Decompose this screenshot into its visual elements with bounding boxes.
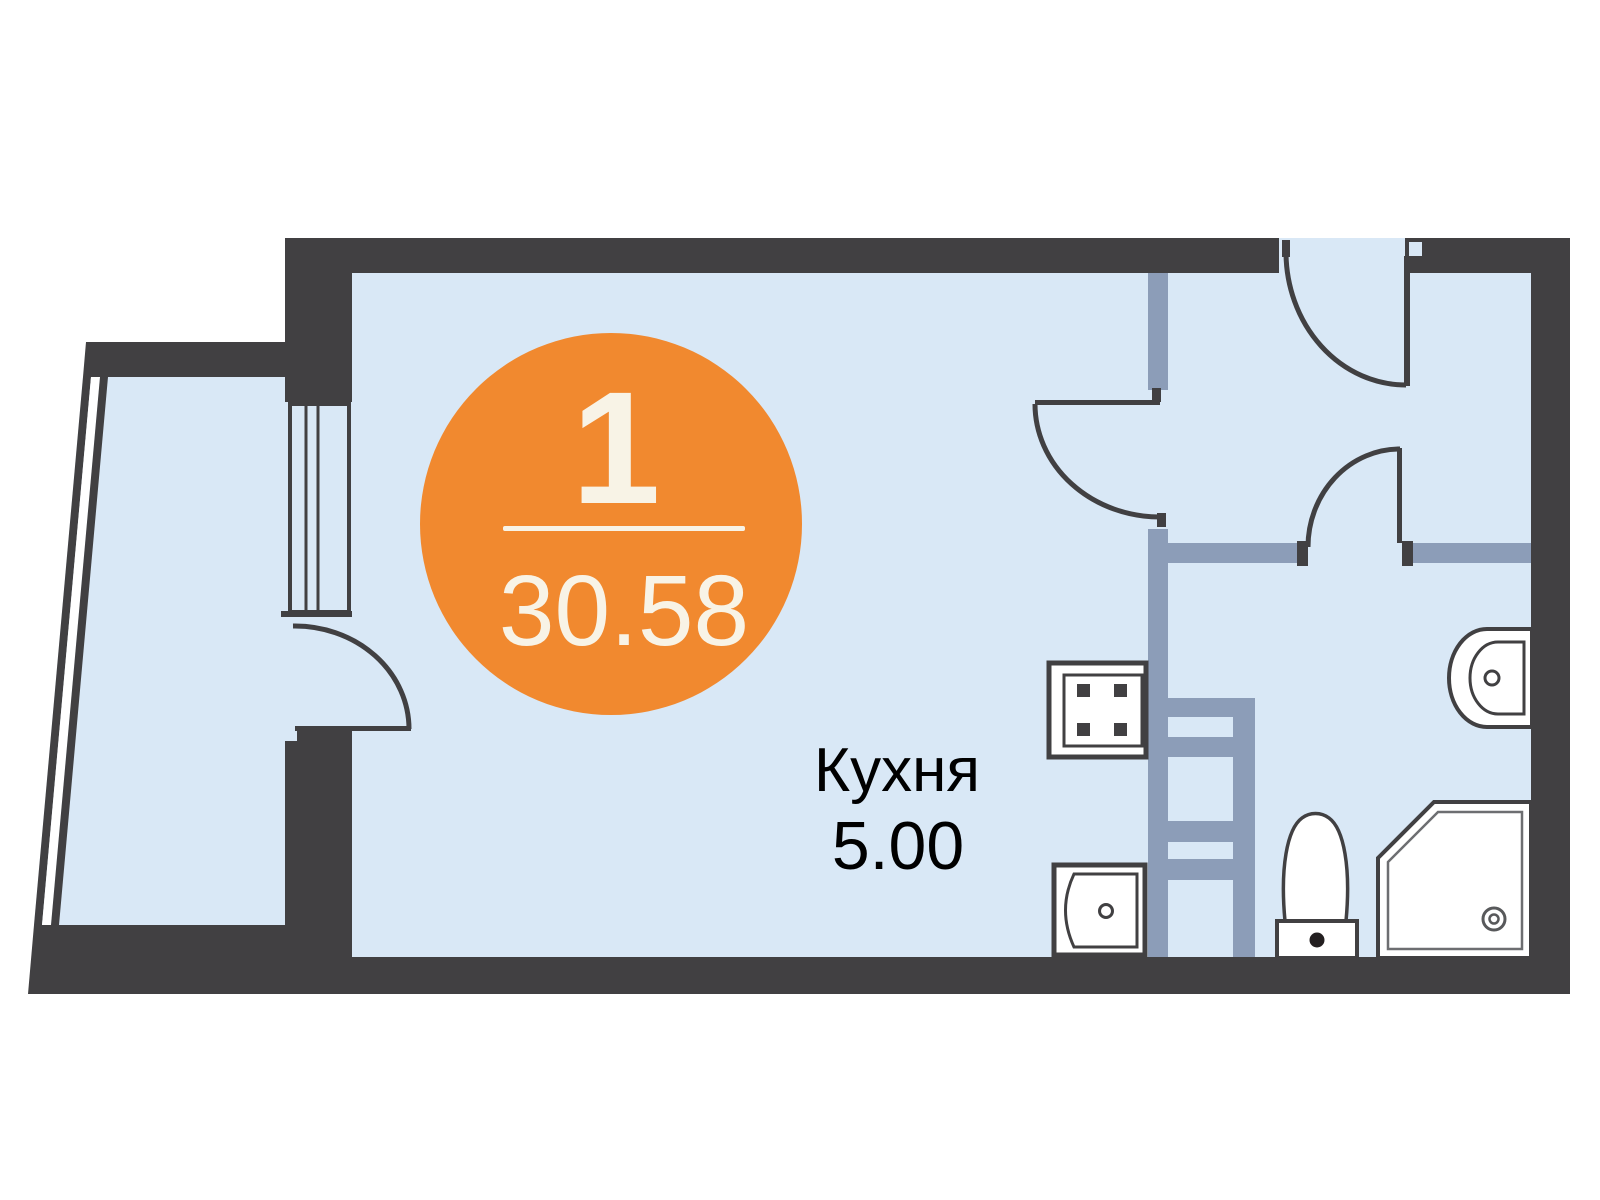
top-wall-left-segment (285, 238, 1279, 273)
hall-door-jamb-top (1152, 388, 1161, 402)
bathroom-sink-icon (1449, 629, 1532, 727)
bathroom-door-leaf (1397, 448, 1402, 543)
left-wall-upper (285, 238, 352, 402)
ladder-right-rail (1233, 698, 1255, 957)
kitchen-area: 5.00 (832, 808, 964, 884)
ladder-rung-1 (1168, 737, 1233, 757)
balcony-window-block (281, 404, 352, 617)
floor-plan-page: 1 30.58 Кухня 5.00 (0, 0, 1600, 1200)
ladder-rung-2 (1168, 821, 1233, 842)
hall-bath-wall-left (1168, 543, 1297, 563)
ladder-rung-3 (1168, 859, 1233, 880)
kitchen-bath-wall (1148, 529, 1168, 957)
balcony-top-wall (83, 342, 285, 377)
bottom-wall (285, 957, 1570, 994)
window-sill (281, 611, 352, 617)
bathroom-door-jamb-right (1402, 541, 1413, 566)
hall-wall-upper (1148, 273, 1168, 390)
badge-divider (503, 526, 745, 531)
left-wall-hinge-step (297, 731, 352, 741)
hall-door-leaf (1035, 400, 1160, 405)
balcony-door-leaf (295, 726, 411, 731)
balcony-bottom-wall (28, 925, 285, 994)
entrance-door-leaf (1404, 256, 1410, 386)
floor-plan-svg: 1 30.58 Кухня 5.00 (0, 0, 1600, 1200)
right-wall (1531, 238, 1570, 994)
kitchen-label: Кухня 5.00 (814, 736, 980, 884)
left-wall-lower (285, 741, 352, 957)
kitchen-sink-icon (1054, 865, 1145, 955)
stove-icon (1049, 663, 1146, 757)
kitchen-name: Кухня (814, 736, 980, 805)
room-area-badge: 1 30.58 (420, 333, 802, 715)
entrance-frame-notch (1409, 242, 1422, 256)
badge-total-area: 30.58 (499, 555, 749, 667)
badge-rooms-count: 1 (572, 358, 661, 537)
entrance-doorway-recess (1279, 238, 1405, 273)
toilet-bowl (1283, 814, 1347, 922)
toilet-button (1310, 933, 1325, 948)
hall-bath-wall-right (1413, 543, 1531, 563)
